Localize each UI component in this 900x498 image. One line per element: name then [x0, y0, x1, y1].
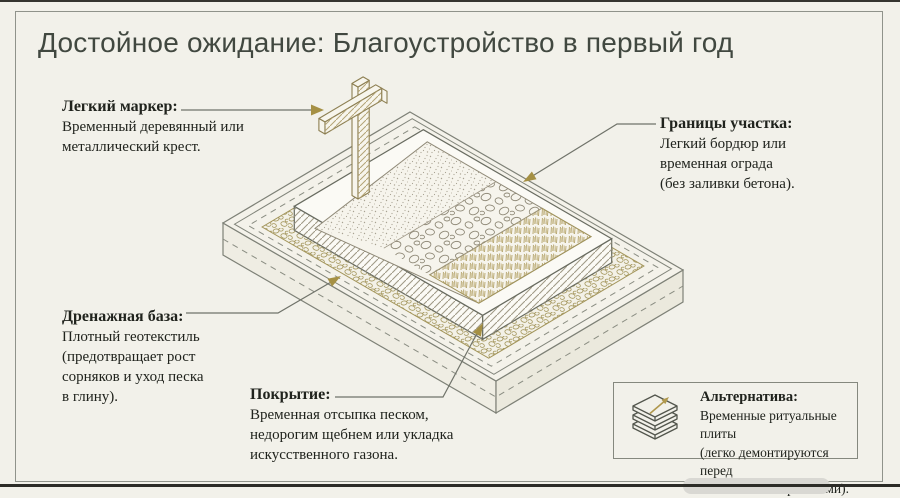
callout-covering-heading: Покрытие:	[250, 385, 453, 405]
callout-marker: Легкий маркер: Временный деревянный или …	[62, 97, 244, 157]
callout-covering-line: искусственного газона.	[250, 445, 453, 465]
callout-drainage-line: сорняков и уход песка	[62, 367, 204, 387]
callout-plot-borders-heading: Границы участка:	[660, 114, 795, 134]
callout-covering-line: Временная отсыпка песком,	[250, 405, 453, 425]
callout-drainage-heading: Дренажная база:	[62, 307, 204, 327]
callout-alternative-line: Временные ритуальные плиты	[700, 407, 857, 444]
gold-arrowhead-borders	[523, 172, 537, 183]
alternative-card: Альтернатива: Временные ритуальные плиты…	[613, 382, 858, 459]
callout-drainage: Дренажная база: Плотный геотекстиль (пре…	[62, 307, 204, 407]
callout-drainage-line: Плотный геотекстиль	[62, 327, 204, 347]
callout-plot-borders-line: Легкий бордюр или	[660, 134, 795, 154]
callout-plot-borders: Границы участка: Легкий бордюр или време…	[660, 114, 795, 194]
cross-arm-right-cap	[382, 88, 387, 103]
stacked-slabs-icon	[622, 390, 692, 452]
callout-covering: Покрытие: Временная отсыпка песком, недо…	[250, 385, 453, 465]
callout-marker-heading: Легкий маркер:	[62, 97, 244, 117]
callout-drainage-line: (предотвращает рост	[62, 347, 204, 367]
callout-plot-borders-line: (без заливки бетона).	[660, 174, 795, 194]
gold-arrowhead-marker	[311, 105, 324, 116]
callout-marker-line: металлический крест.	[62, 137, 244, 157]
page-root: { "page": { "title": "Достойное ожидание…	[0, 0, 900, 487]
leader-borders	[526, 124, 656, 180]
callout-alternative-heading: Альтернатива:	[700, 388, 857, 407]
callout-marker-line: Временный деревянный или	[62, 117, 244, 137]
callout-alternative-line: (легко демонтируются перед	[700, 444, 857, 481]
callout-drainage-line: в глину).	[62, 387, 204, 407]
callout-plot-borders-line: временная ограда	[660, 154, 795, 174]
callout-covering-line: недорогим щебнем или укладка	[250, 425, 453, 445]
